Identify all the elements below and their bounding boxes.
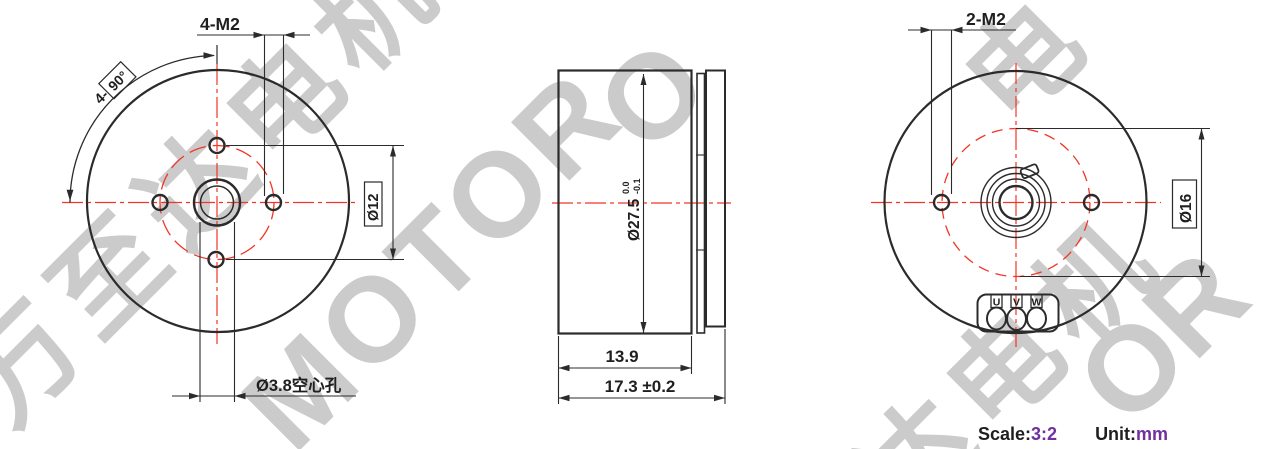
dim-outer-dia-label: Ø27.5: [626, 198, 643, 241]
scale-value: 3:2: [1031, 424, 1057, 444]
dim-bolt-circle-label: Ø12: [366, 194, 382, 221]
dim-tol-lower: -0.1: [632, 178, 642, 194]
snap-ring-tab: [1020, 164, 1039, 179]
scale-label: Scale:: [978, 424, 1031, 444]
terminal-u-label: U: [993, 297, 1001, 309]
terminal-w-label: W: [1032, 297, 1042, 309]
dim-4-m2-label: 4-M2: [200, 14, 240, 34]
dim-overall-length-label: 17.3 ±0.2: [605, 377, 676, 396]
dim-lengths: 13.9 17.3 ±0.2: [559, 329, 726, 404]
footer-note: Scale:3:2Unit:mm: [978, 424, 1168, 444]
dim-body-length-label: 13.9: [605, 347, 638, 366]
dim-angle-value: 90°: [105, 68, 131, 94]
svg-text:Scale:3:2Unit:mm: Scale:3:2Unit:mm: [978, 424, 1168, 444]
unit-label: Unit:: [1095, 424, 1136, 444]
dim-2-m2-label: 2-M2: [966, 9, 1006, 29]
dim-angle-prefix: 4-: [92, 87, 113, 108]
dim-tol-upper: 0.0: [621, 181, 631, 194]
dim-mount-circle-label: Ø16: [1178, 193, 1195, 223]
terminal-v-label: V: [1013, 297, 1020, 309]
unit-value: mm: [1136, 424, 1168, 444]
dim-hollow-shaft-label: Ø3.8空心孔: [256, 375, 342, 395]
engineering-drawing: 万至达电机 WZD MOTOR 万至达电机 OR 电 O: [0, 0, 1264, 449]
